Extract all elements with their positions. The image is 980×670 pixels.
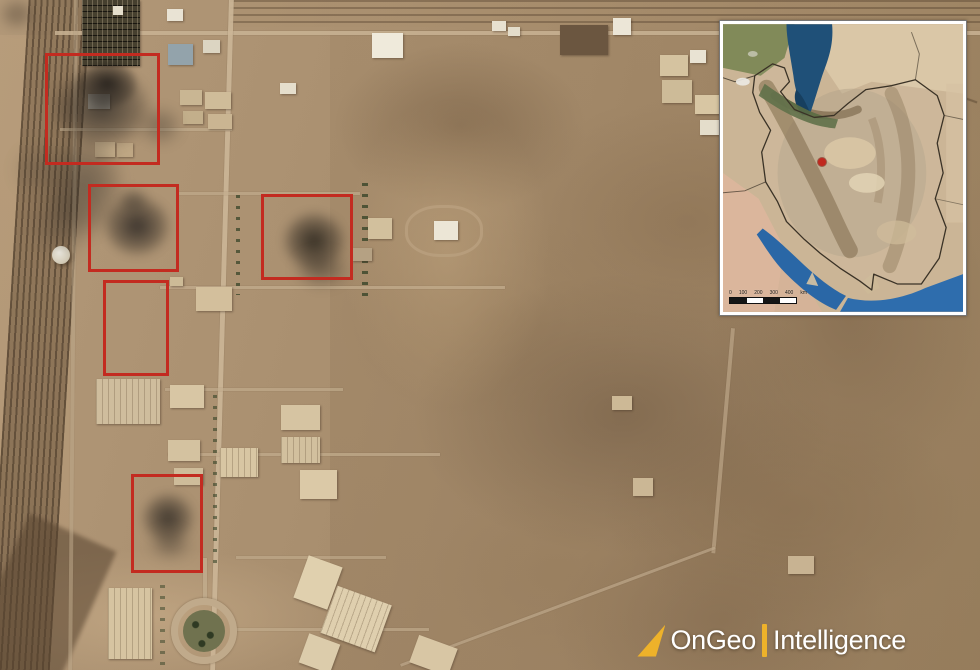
logo-divider-bar xyxy=(762,624,767,657)
ongeo-intelligence-logo: OnGeo Intelligence xyxy=(637,624,906,657)
inset-locator-map: 0100200300400km xyxy=(719,20,967,316)
scale-segment xyxy=(763,298,780,303)
scale-segment xyxy=(730,298,747,303)
scale-tick-label: 300 xyxy=(770,290,778,296)
country-map-graphic xyxy=(723,24,963,312)
scale-tick-label: km xyxy=(800,290,807,296)
annotation-box-site-4 xyxy=(103,280,169,376)
annotated-satellite-image: 0100200300400km OnGeo Intelligence xyxy=(0,0,980,670)
logo-brand-text: OnGeo xyxy=(670,625,756,656)
location-marker-dot xyxy=(818,158,826,166)
scale-tick-label: 100 xyxy=(739,290,747,296)
scale-segment xyxy=(780,298,797,303)
scale-segments xyxy=(729,297,797,304)
annotation-box-site-1 xyxy=(45,53,160,165)
map-scale-bar: 0100200300400km xyxy=(729,290,809,304)
scale-tick-label: 400 xyxy=(785,290,793,296)
scale-tick-label: 0 xyxy=(729,290,732,296)
logo-arrow-icon xyxy=(637,625,665,657)
logo-suffix-text: Intelligence xyxy=(773,625,906,656)
annotation-box-site-5 xyxy=(131,474,203,573)
inset-map-canvas: 0100200300400km xyxy=(723,24,963,312)
annotation-box-site-2 xyxy=(88,184,179,272)
scale-tick-label: 200 xyxy=(754,290,762,296)
annotation-box-site-3 xyxy=(261,194,353,280)
scale-ticks: 0100200300400km xyxy=(729,290,807,296)
scale-segment xyxy=(747,298,764,303)
